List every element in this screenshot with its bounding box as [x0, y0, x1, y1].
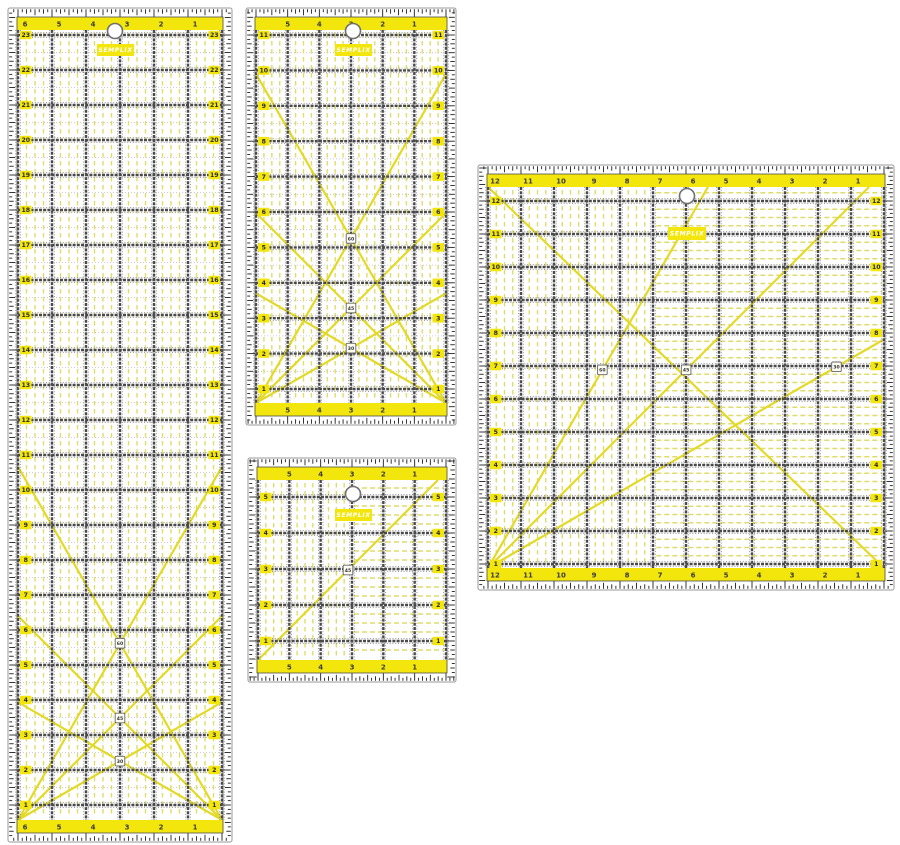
band-number: 11 [523, 571, 533, 579]
ruler-6x24-inch: 6655443322112323222221212020191918181717… [8, 8, 232, 842]
row-number: 17 [21, 242, 30, 249]
row-number: 1 [212, 802, 216, 809]
row-number: 9 [494, 297, 498, 304]
row-number: 7 [494, 363, 498, 370]
row-number: 9 [874, 297, 878, 304]
band-number: 4 [757, 571, 762, 579]
row-number: 10 [210, 487, 219, 494]
row-number: 4 [436, 280, 441, 287]
band-number: 8 [625, 571, 630, 579]
row-number: 1 [264, 638, 268, 645]
band-number: 5 [285, 406, 290, 414]
band-number: 5 [287, 663, 292, 671]
band-number: 3 [125, 823, 130, 831]
band-number: 3 [350, 663, 355, 671]
ruler-12x12-inch: 1212111110109988776655443322111212111110… [478, 165, 894, 590]
row-number: 8 [874, 330, 878, 337]
row-number: 5 [874, 429, 878, 436]
row-number: 4 [436, 530, 441, 537]
band-number: 1 [856, 177, 861, 185]
row-number: 7 [24, 592, 28, 599]
row-number: 4 [874, 462, 879, 469]
band-number: 5 [57, 823, 62, 831]
row-number: 4 [262, 280, 267, 287]
row-number: 2 [436, 602, 440, 609]
band-number: 4 [91, 823, 96, 831]
band-number: 2 [823, 177, 828, 185]
svg-text:30: 30 [117, 759, 123, 765]
svg-text:60: 60 [348, 236, 354, 242]
band-number: 11 [523, 177, 533, 185]
row-number: 6 [24, 627, 28, 634]
row-number: 11 [259, 32, 268, 39]
row-number: 9 [262, 103, 266, 110]
band-number: 2 [381, 663, 386, 671]
row-number: 7 [874, 363, 878, 370]
row-number: 3 [262, 315, 266, 322]
band-number: 7 [658, 177, 663, 185]
row-number: 8 [436, 138, 440, 145]
row-number: 5 [494, 429, 498, 436]
svg-text:30: 30 [348, 346, 354, 352]
band-number: 5 [724, 571, 729, 579]
band-number: 2 [823, 571, 828, 579]
row-number: 1 [436, 386, 440, 393]
band-number: 1 [412, 470, 417, 478]
row-number: 4 [212, 697, 217, 704]
hanging-hole-icon [346, 24, 361, 39]
row-number: 11 [434, 32, 443, 39]
row-number: 1 [436, 638, 440, 645]
band-number: 5 [57, 20, 62, 28]
row-number: 2 [264, 602, 268, 609]
row-number: 3 [494, 495, 498, 502]
band-number: 4 [318, 663, 323, 671]
band-number: 1 [412, 20, 417, 28]
band-number: 2 [381, 470, 386, 478]
row-number: 4 [494, 462, 499, 469]
row-number: 6 [874, 396, 878, 403]
row-number: 19 [21, 172, 30, 179]
product-photo-quilting-rulers: 6655443322112323222221212020191918181717… [0, 0, 900, 845]
band-number: 3 [349, 406, 354, 414]
row-number: 18 [21, 207, 30, 214]
row-number: 15 [210, 312, 219, 319]
row-number: 7 [212, 592, 216, 599]
row-number: 5 [264, 494, 268, 501]
row-number: 12 [872, 198, 881, 205]
band-number: 6 [23, 20, 28, 28]
band-number: 3 [790, 571, 795, 579]
row-number: 11 [491, 231, 500, 238]
row-number: 1 [24, 802, 28, 809]
row-number: 20 [210, 137, 219, 144]
row-number: 2 [262, 351, 266, 358]
band-number: 4 [318, 470, 323, 478]
row-number: 18 [210, 207, 219, 214]
row-number: 9 [24, 522, 28, 529]
row-number: 10 [491, 264, 500, 271]
row-number: 5 [262, 245, 266, 252]
band-number: 1 [193, 20, 198, 28]
svg-text:60: 60 [599, 368, 605, 374]
band-number: 1 [412, 663, 417, 671]
brand-logo-text: SEMPLIX [98, 47, 132, 54]
row-number: 23 [210, 32, 219, 39]
svg-text:45: 45 [345, 568, 351, 574]
row-number: 4 [264, 530, 269, 537]
band-number: 4 [317, 406, 322, 414]
brand-logo-text: SEMPLIX [336, 512, 370, 519]
row-number: 6 [262, 209, 266, 216]
row-number: 5 [436, 494, 440, 501]
band-number: 4 [91, 20, 96, 28]
row-number: 8 [262, 138, 266, 145]
brand-logo-text: SEMPLIX [336, 47, 370, 54]
band-number: 5 [287, 470, 292, 478]
row-number: 6 [494, 396, 498, 403]
band-number: 2 [380, 406, 385, 414]
row-number: 12 [210, 417, 219, 424]
row-number: 3 [874, 495, 878, 502]
row-number: 4 [24, 697, 29, 704]
band-number: 6 [23, 823, 28, 831]
band-number: 12 [490, 177, 500, 185]
row-number: 11 [210, 452, 219, 459]
row-number: 5 [436, 245, 440, 252]
svg-text:30: 30 [833, 365, 839, 371]
row-number: 2 [494, 528, 498, 535]
row-number: 16 [21, 277, 30, 284]
row-number: 22 [21, 67, 30, 74]
band-number: 2 [159, 20, 164, 28]
band-number: 8 [625, 177, 630, 185]
svg-text:45: 45 [683, 368, 689, 374]
row-number: 6 [436, 209, 440, 216]
band-number: 9 [592, 177, 597, 185]
row-number: 11 [21, 452, 30, 459]
hanging-hole-icon [346, 487, 361, 502]
row-number: 20 [21, 137, 30, 144]
row-number: 1 [874, 561, 878, 568]
row-number: 14 [21, 347, 30, 354]
band-number: 5 [724, 177, 729, 185]
band-number: 1 [856, 571, 861, 579]
band-number: 2 [159, 823, 164, 831]
band-number: 4 [317, 20, 322, 28]
brand-logo-text: SEMPLIX [670, 231, 704, 238]
row-number: 10 [434, 68, 443, 75]
row-number: 13 [210, 382, 219, 389]
row-number: 3 [264, 566, 268, 573]
row-number: 8 [24, 557, 28, 564]
row-number: 10 [21, 487, 30, 494]
row-number: 12 [491, 198, 500, 205]
row-number: 14 [210, 347, 219, 354]
hanging-hole-icon [108, 24, 123, 39]
band-number: 5 [285, 20, 290, 28]
svg-text:60: 60 [117, 641, 123, 647]
row-number: 2 [874, 528, 878, 535]
band-number: 3 [350, 470, 355, 478]
row-number: 6 [212, 627, 216, 634]
band-number: 10 [556, 571, 566, 579]
band-number: 3 [790, 177, 795, 185]
row-number: 10 [259, 68, 268, 75]
row-number: 7 [436, 174, 440, 181]
row-number: 17 [210, 242, 219, 249]
row-number: 1 [262, 386, 266, 393]
row-number: 5 [212, 662, 216, 669]
row-number: 3 [24, 732, 28, 739]
band-number: 2 [380, 20, 385, 28]
row-number: 1 [494, 561, 498, 568]
ruler-6x6-inch: 5544332211554433221145SEMPLIX [248, 458, 456, 682]
svg-text:45: 45 [117, 716, 123, 722]
ruler-6x12-inch: 5544332211111110109988776655443322116045… [246, 8, 456, 425]
row-number: 7 [262, 174, 266, 181]
row-number: 21 [21, 102, 30, 109]
row-number: 8 [494, 330, 498, 337]
band-number: 10 [556, 177, 566, 185]
row-number: 2 [436, 351, 440, 358]
row-number: 9 [212, 522, 216, 529]
band-number: 1 [193, 823, 198, 831]
row-number: 8 [212, 557, 216, 564]
row-number: 3 [436, 566, 440, 573]
row-number: 19 [210, 172, 219, 179]
row-number: 15 [21, 312, 30, 319]
band-number: 6 [691, 177, 696, 185]
rulers-image: 6655443322112323222221212020191918181717… [0, 0, 900, 845]
band-number: 9 [592, 571, 597, 579]
band-number: 3 [125, 20, 130, 28]
row-number: 5 [24, 662, 28, 669]
row-number: 9 [436, 103, 440, 110]
band-number: 4 [757, 177, 762, 185]
row-number: 2 [24, 767, 28, 774]
svg-text:45: 45 [348, 306, 354, 312]
row-number: 10 [872, 264, 881, 271]
row-number: 22 [210, 67, 219, 74]
row-number: 2 [212, 767, 216, 774]
row-number: 23 [21, 32, 30, 39]
row-number: 3 [212, 732, 216, 739]
band-number: 6 [691, 571, 696, 579]
row-number: 11 [872, 231, 881, 238]
hanging-hole-icon [680, 189, 695, 204]
band-number: 7 [658, 571, 663, 579]
row-number: 16 [210, 277, 219, 284]
band-number: 12 [490, 571, 500, 579]
row-number: 3 [436, 315, 440, 322]
row-number: 12 [21, 417, 30, 424]
row-number: 13 [21, 382, 30, 389]
row-number: 21 [210, 102, 219, 109]
band-number: 1 [412, 406, 417, 414]
